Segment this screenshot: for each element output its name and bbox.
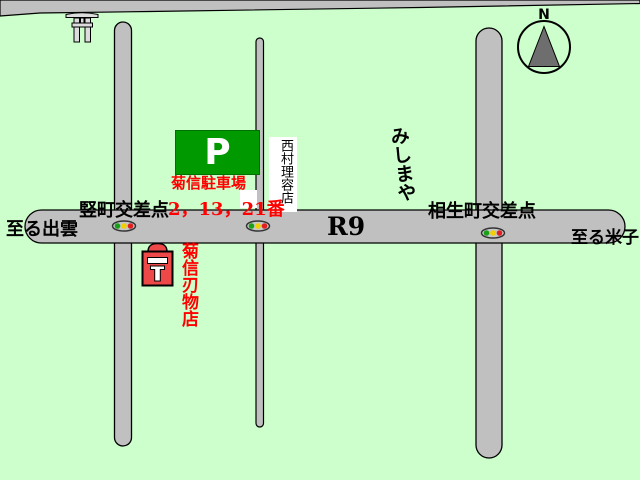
map-graphics: N — [0, 0, 640, 480]
traffic-light-icon-tatemachi — [113, 221, 136, 231]
traffic-light-icon-aioicho — [482, 228, 505, 238]
parking-name-label: 菊信駐車場 — [171, 172, 246, 193]
parking-letter: P — [204, 135, 230, 171]
torii-gate-icon — [66, 13, 98, 42]
aioicho-crossing-label: 相生町交差点 — [428, 197, 536, 223]
compass-north-label: N — [538, 7, 550, 23]
compass-icon: N — [518, 7, 570, 73]
barber-shop-label: 西村理容店 — [276, 139, 295, 204]
parking-sign: P — [175, 130, 260, 175]
tatemachi-crossing-label: 竪町交差点 — [79, 196, 169, 222]
shop-marker-icon — [143, 244, 173, 286]
bus-stop-numbers-label: 2，13，21番 — [168, 195, 285, 221]
to-izumo-label: 至る出雲 — [6, 215, 78, 241]
access-map: N P — [0, 0, 640, 480]
knife-shop-label: 菊信刃物店 — [176, 242, 201, 327]
route-r9-label: R9 — [327, 212, 365, 241]
to-yonago-label: 至る米子 — [571, 223, 639, 248]
traffic-light-icon-nishimura — [247, 221, 270, 231]
